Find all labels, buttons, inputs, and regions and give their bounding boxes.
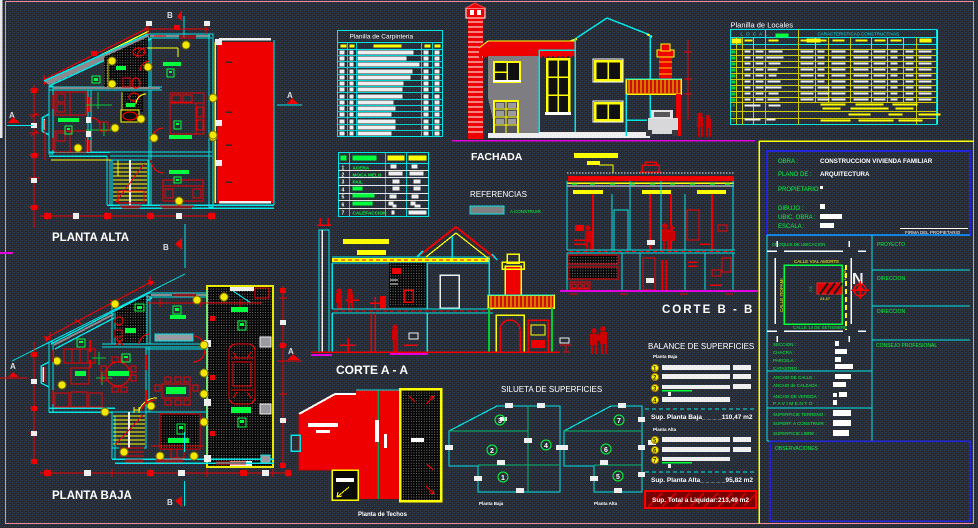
svg-text:Planta Alta: Planta Alta xyxy=(594,501,618,506)
svg-text:Planta Baja: Planta Baja xyxy=(479,501,504,506)
svg-text:CORTE A - A: CORTE A - A xyxy=(336,363,408,377)
svg-text:CALLE 14 DE SETIEMBRE: CALLE 14 DE SETIEMBRE xyxy=(793,325,847,330)
svg-text:CONSEJO PROFESIONAL: CONSEJO PROFESIONAL xyxy=(876,343,937,349)
svg-text:Sup. Total a Liquidar:213,49 m: Sup. Total a Liquidar:213,49 m2 xyxy=(652,497,749,504)
svg-text:OBRA :: OBRA : xyxy=(778,159,798,165)
svg-text:ANCHO DE VEREDA :: ANCHO DE VEREDA : xyxy=(773,394,819,399)
svg-text:ANCHO DE CALLE :: ANCHO DE CALLE : xyxy=(773,375,815,380)
svg-text:Planta Baja: Planta Baja xyxy=(653,354,678,359)
svg-text:ACERA: ACERA xyxy=(353,166,370,171)
svg-text:L O C A L: L O C A L xyxy=(741,32,769,37)
svg-text:DIRECCION: DIRECCION xyxy=(877,309,905,315)
svg-text:CROQUIS DE UBICACION: CROQUIS DE UBICACION xyxy=(772,242,825,247)
svg-text:DIRECCION: DIRECCION xyxy=(877,276,905,282)
svg-text:OBSERVACIONES: OBSERVACIONES xyxy=(775,446,819,452)
svg-text:Planta de Techos: Planta de Techos xyxy=(358,512,408,518)
svg-text:6: 6 xyxy=(342,203,345,209)
svg-text:7: 7 xyxy=(342,211,345,217)
svg-text:FACHADA: FACHADA xyxy=(471,151,523,163)
svg-text:UBIC. OBRA :: UBIC. OBRA : xyxy=(778,215,816,221)
svg-text:3: 3 xyxy=(342,180,345,186)
svg-text:ESCALA :: ESCALA : xyxy=(778,224,805,230)
svg-text:SUPERFICIE TERRENO :: SUPERFICIE TERRENO : xyxy=(773,412,826,417)
svg-text:4: 4 xyxy=(544,443,548,450)
svg-text:1: 1 xyxy=(501,475,505,482)
svg-text:Planilla de Locales: Planilla de Locales xyxy=(731,21,794,30)
svg-text:N: N xyxy=(852,271,864,288)
svg-text:C: C xyxy=(733,112,736,117)
svg-text:5: 5 xyxy=(342,195,345,201)
svg-text:4: 4 xyxy=(342,188,345,194)
svg-text:REFERENCIAS: REFERENCIAS xyxy=(470,190,527,199)
svg-text:ANCHO de CALZADA :: ANCHO de CALZADA : xyxy=(773,383,820,388)
svg-text:PLANTA ALTA: PLANTA ALTA xyxy=(52,232,129,244)
svg-text:PLANTA BAJA: PLANTA BAJA xyxy=(52,490,132,502)
svg-text:CARACTERISTICAS CONSTRUCTIVAS: CARACTERISTICAS CONSTRUCTIVAS xyxy=(818,32,900,37)
svg-text:SILUETA DE SUPERFICIES: SILUETA DE SUPERFICIES xyxy=(501,385,602,394)
svg-text:B: B xyxy=(163,243,169,252)
svg-text:PARCELA :: PARCELA : xyxy=(773,358,796,363)
svg-text:DIBUJO :: DIBUJO : xyxy=(778,206,804,212)
svg-text:CORTE B - B: CORTE B - B xyxy=(662,304,754,316)
svg-text:PROPIETARIO :: PROPIETARIO : xyxy=(778,187,822,193)
svg-text:D: D xyxy=(733,118,736,123)
svg-text:CALLE VIAL AMORTE: CALLE VIAL AMORTE xyxy=(794,259,839,264)
svg-text:Planilla de Carpinteria: Planilla de Carpinteria xyxy=(350,34,414,41)
svg-text:CALEFACCION: CALEFACCION xyxy=(353,211,387,216)
svg-text:2: 2 xyxy=(342,173,345,179)
svg-text:7,5: 7,5 xyxy=(808,286,813,292)
svg-text:SUPERFICIE LIBRE :: SUPERFICIE LIBRE : xyxy=(773,431,817,436)
svg-text:FIRMA DEL PROPIETARIO: FIRMA DEL PROPIETARIO xyxy=(905,230,961,235)
svg-text:ARQUITECTURA: ARQUITECTURA xyxy=(820,171,870,178)
svg-text:MOCA MELO: MOCA MELO xyxy=(353,173,382,178)
svg-text:A: A xyxy=(10,362,16,371)
svg-text:Sup. Planta Alta_ _ _ _ _95,82: Sup. Planta Alta_ _ _ _ _95,82 m2 xyxy=(651,477,753,484)
svg-text:1: 1 xyxy=(342,166,345,172)
svg-text:B: B xyxy=(167,498,173,507)
svg-text:6: 6 xyxy=(604,447,608,454)
svg-text:PAVIMENTO :: PAVIMENTO : xyxy=(773,401,820,407)
svg-text:A CONSTRUIR: A CONSTRUIR xyxy=(510,209,542,214)
svg-text:PROYECTO: PROYECTO xyxy=(877,242,905,248)
svg-text:BALANCE DE SUPERFICIES: BALANCE DE SUPERFICIES xyxy=(648,342,754,351)
svg-text:A: A xyxy=(733,103,736,108)
svg-text:Planta Alta: Planta Alta xyxy=(653,427,677,432)
svg-text:2: 2 xyxy=(490,448,494,455)
svg-text:Sup. Planta Baja_ _ _ _110,47: Sup. Planta Baja_ _ _ _110,47 m2 xyxy=(651,414,753,421)
svg-text:24,47: 24,47 xyxy=(820,296,831,301)
svg-text:SUPERF. A CONSTRUIR :: SUPERF. A CONSTRUIR : xyxy=(773,421,826,426)
svg-text:CATASTRO :: CATASTRO : xyxy=(773,366,799,371)
svg-text:CALLE ITOPAMI: CALLE ITOPAMI xyxy=(779,278,784,312)
svg-text:B: B xyxy=(167,11,173,20)
svg-text:SECCION :: SECCION : xyxy=(773,342,796,347)
svg-text:PLANO DE :: PLANO DE : xyxy=(778,172,812,178)
svg-text:7: 7 xyxy=(617,418,621,425)
svg-text:CONSTRUCCION VIVIENDA FAMILIAR: CONSTRUCCION VIVIENDA FAMILIAR xyxy=(820,158,933,165)
svg-text:5: 5 xyxy=(616,474,620,481)
svg-text:3: 3 xyxy=(498,418,502,425)
svg-text:PA‌IL: PA‌IL xyxy=(353,180,363,185)
svg-text:CHACRA :: CHACRA : xyxy=(773,350,794,355)
